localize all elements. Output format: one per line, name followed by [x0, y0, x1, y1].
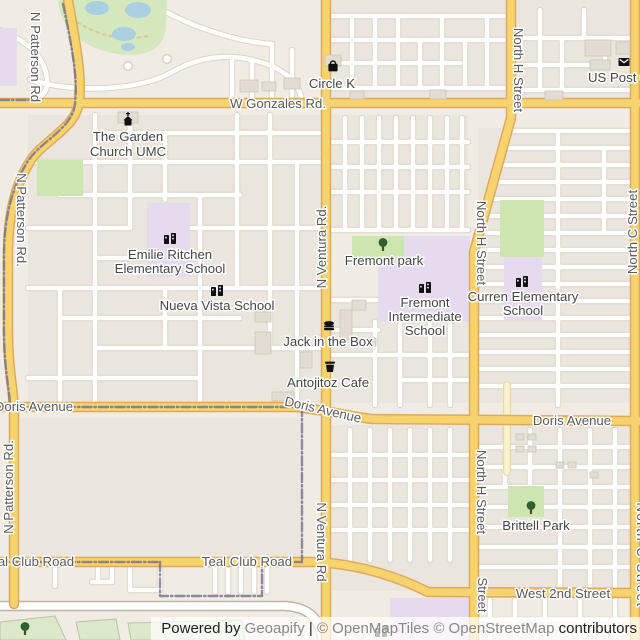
- fremont-park-label: Fremont park: [345, 253, 424, 268]
- street-label-north-c-street: North C Street: [625, 190, 640, 275]
- emilie-ritchen-elementary-school-label: Emilie Ritchen: [128, 247, 212, 262]
- the-garden-church-umc-label: The Garden: [93, 129, 163, 144]
- curren-elementary-school-label: Curren Elementary: [468, 289, 579, 304]
- building: [556, 462, 564, 468]
- street-label-north-h-street: North H Street: [511, 28, 526, 113]
- fremont-intermediate-school-label: Intermediate: [388, 309, 461, 324]
- cul-de-sac: [124, 62, 131, 69]
- street-label-w-gonzales-rd-: W Gonzales Rd.: [230, 96, 326, 111]
- street-label-street: Street: [475, 577, 490, 613]
- building: [255, 332, 271, 354]
- building: [350, 91, 364, 99]
- pond-water: [112, 27, 136, 41]
- fremont-intermediate-school-label: School: [405, 323, 445, 338]
- city-block: [20, 418, 302, 560]
- attribution-text: Powered by: [161, 617, 244, 640]
- green-north-of-curren: [500, 200, 544, 257]
- building: [352, 300, 366, 310]
- street-label-teal-club-road: Teal Club Road: [0, 554, 74, 569]
- brittell-park-green: [508, 486, 544, 517]
- curren-elementary-school-label: School: [503, 303, 543, 318]
- building: [284, 78, 300, 89]
- attribution-link[interactable]: © OpenMapTiles: [317, 617, 429, 640]
- street-label-north-c-street: North C Street: [634, 502, 640, 607]
- park-mid-left: [37, 160, 83, 196]
- jack-in-the-box-label: Jack in the Box: [283, 334, 373, 349]
- building: [262, 82, 276, 91]
- school-grounds-left-edge: [0, 28, 17, 86]
- building: [430, 90, 446, 99]
- antojitoz-cafe-label: Antojitoz Cafe: [287, 375, 369, 390]
- street-label-doris-avenue: Doris Avenue: [0, 399, 73, 414]
- attribution-link[interactable]: Geoapify: [245, 617, 305, 640]
- us-post-office-envelope-icon: [619, 58, 630, 66]
- street-label-n-ventura-rd: N Ventura Rd: [314, 502, 329, 581]
- pond-water: [125, 2, 151, 18]
- street-label-n-patterson-rd-: N Patterson Rd.: [1, 440, 16, 534]
- fremont-intermediate-school-label: Fremont: [400, 295, 449, 310]
- jack-in-the-box-burger-icon: [324, 321, 334, 330]
- brittell-park-label: Brittell Park: [502, 518, 570, 533]
- building: [568, 462, 576, 468]
- building: [240, 80, 258, 92]
- pond-water: [121, 43, 135, 51]
- cul-de-sac: [163, 55, 170, 62]
- attribution-text: |: [305, 617, 317, 640]
- building: [528, 434, 536, 440]
- street-label-north-h-street: North H Street: [474, 450, 489, 535]
- street-label-n-patterson-rd: N Patterson Rd: [28, 12, 43, 102]
- street-label-teal-club-road: Teal Club Road: [202, 554, 292, 569]
- building: [516, 434, 524, 440]
- circle-k-label: Circle K: [309, 76, 355, 91]
- us-post-office-label: US Post Of: [588, 70, 640, 85]
- building: [516, 446, 524, 452]
- building: [255, 312, 271, 322]
- building: [300, 352, 312, 368]
- attribution-link[interactable]: © OpenStreetMap: [433, 617, 554, 640]
- building: [585, 40, 611, 56]
- building: [616, 42, 630, 54]
- map-svg: W Gonzales Rd.Doris AvenueDoris AvenueDo…: [0, 0, 640, 640]
- street-label-n-patterson-rd-: N Patterson Rd.: [14, 173, 29, 267]
- map-attribution: Powered by Geoapify | © OpenMapTiles © O…: [151, 617, 640, 640]
- pond-water: [85, 1, 109, 15]
- building: [528, 446, 536, 452]
- street-label-west-2nd-street: West 2nd Street: [516, 586, 611, 601]
- building: [590, 472, 598, 478]
- farm-field: [76, 619, 120, 640]
- street-label-doris-avenue: Doris Avenue: [533, 413, 611, 428]
- street-label-n-ventura-rd-: N Ventura Rd.: [314, 206, 329, 289]
- building: [590, 60, 610, 70]
- map-canvas[interactable]: W Gonzales Rd.Doris AvenueDoris AvenueDo…: [0, 0, 640, 640]
- the-garden-church-umc-label: Church UMC: [90, 144, 167, 159]
- nueva-vista-school-label: Nueva Vista School: [160, 298, 275, 313]
- attribution-text: contributors: [554, 617, 637, 640]
- emilie-ritchen-elementary-school-label: Elementary School: [115, 261, 226, 276]
- building: [545, 91, 563, 100]
- street-label-north-h-street: North H Street: [474, 201, 489, 286]
